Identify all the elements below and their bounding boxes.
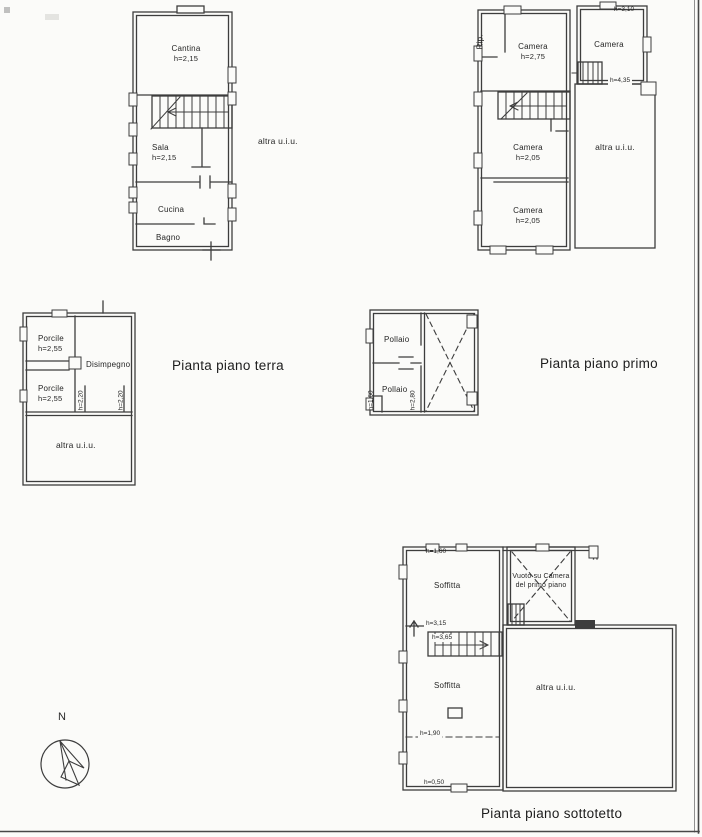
stairs-top-right xyxy=(498,92,570,119)
room-label-rip: Rip. xyxy=(476,34,486,49)
room-label-soffitta-a: Soffitta xyxy=(434,581,460,591)
dim-label-h280: h=2,80 xyxy=(410,390,418,410)
room-label-soffitta-b: Soffitta xyxy=(434,681,460,691)
dim-label-h315: h=3,15 xyxy=(424,620,448,628)
room-label-porcile-b: Porcile h=2,55 xyxy=(38,384,64,404)
room-label-disimpegno: Disimpegno xyxy=(86,360,130,370)
label-altra-uiu-top-right: altra u.i.u. xyxy=(592,142,638,153)
dim-label-h160-mid: h=1,60 xyxy=(368,390,376,410)
room-label-sala: Sala h=2,15 xyxy=(152,143,176,163)
room-label-cantina: Cantina h=2,15 xyxy=(162,44,210,64)
dim-label-h050: h=0,50 xyxy=(424,779,444,787)
room-label-camera-205-a: Camera h=2,05 xyxy=(503,143,553,163)
plan-mid-right xyxy=(366,310,478,415)
label-altra-uiu-top-left: altra u.i.u. xyxy=(258,136,298,147)
stairs-top-left xyxy=(151,96,232,129)
caption-piano-terra: Pianta piano terra xyxy=(172,357,284,375)
dim-label-h190: h=1,90 xyxy=(418,730,442,738)
dim-label-h310: h=3,10 xyxy=(614,6,634,14)
dim-label-h160-attic: h=1,60 xyxy=(426,548,446,556)
label-altra-uiu-mid-left: altra u.i.u. xyxy=(56,440,96,451)
room-label-camera-275: Camera h=2,75 xyxy=(508,42,558,62)
room-label-pollaio-b: Pollaio xyxy=(382,385,407,395)
room-label-camera-310: Camera xyxy=(585,40,633,50)
dim-label-h220-right: h=2,20 xyxy=(118,390,126,410)
label-altra-uiu-bottom: altra u.i.u. xyxy=(536,682,576,693)
north-arrow-icon xyxy=(41,740,89,788)
caption-piano-sottotetto: Pianta piano sottotetto xyxy=(481,805,622,823)
room-label-cucina: Cucina xyxy=(158,205,184,215)
windows-top-left xyxy=(129,67,236,221)
room-label-vuoto: Vuoto su Camera del primo piano xyxy=(505,572,577,590)
dim-label-h365: h=3,65 xyxy=(430,634,454,642)
room-label-porcile-a: Porcile h=2,55 xyxy=(38,334,64,354)
scan-artifacts xyxy=(4,7,59,20)
dim-label-h435: h=4,35 xyxy=(608,77,632,85)
room-label-camera-205-b: Camera h=2,05 xyxy=(503,206,553,226)
dim-label-h220-left: h=2,20 xyxy=(78,390,86,410)
caption-piano-primo: Pianta piano primo xyxy=(540,355,658,373)
room-label-pollaio-a: Pollaio xyxy=(384,335,409,345)
north-label: N xyxy=(58,710,66,724)
scanned-floor-plan-sheet: Cantina h=2,15 Sala h=2,15 Cucina Bagno … xyxy=(0,0,702,837)
room-label-bagno: Bagno xyxy=(156,233,180,243)
floor-plan-linework xyxy=(0,0,702,837)
page-border xyxy=(0,0,699,833)
